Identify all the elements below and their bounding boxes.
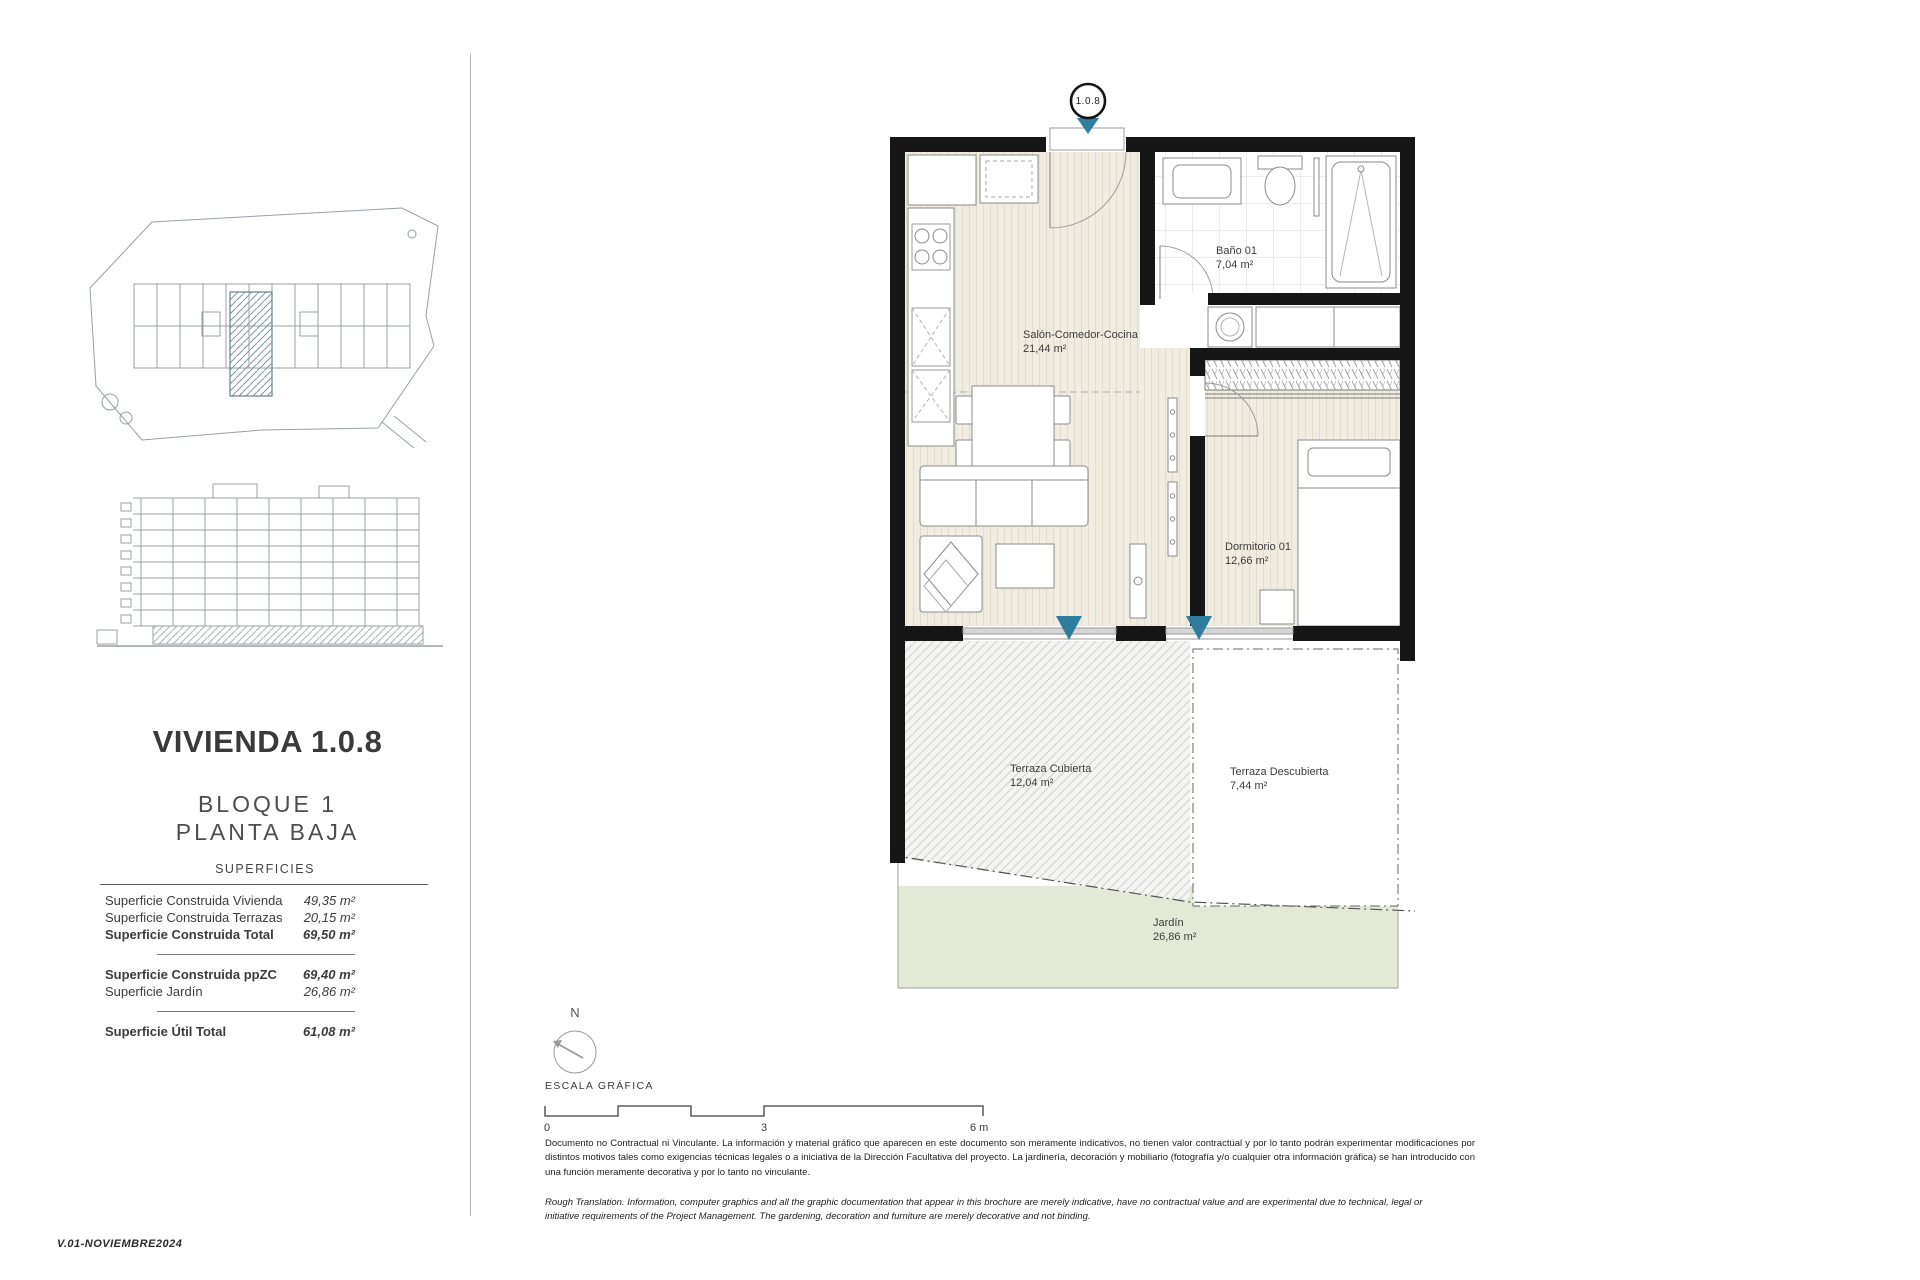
surface-value: 69,50 m² [303,926,355,943]
surface-label: Superficie Útil Total [105,1023,226,1040]
table-row: Superficie Construida Vivienda 49,35 m² [105,892,355,909]
block-label: BLOQUE 1 [198,791,337,817]
room-area: 7,04 m² [1216,258,1257,272]
graphic-scale-title: ESCALA GRÁFICA [545,1080,654,1092]
dining-furniture [956,386,1070,478]
north-arrow-icon [545,1022,605,1082]
document-version: V.01-NOVIEMBRE2024 [57,1238,182,1250]
table-row: Superficie Construida ppZC 69,40 m² [105,966,355,983]
disclaimer-english: Rough Translation. Information, computer… [545,1196,1450,1225]
surfaces-table: Superficie Construida Vivienda 49,35 m² … [105,892,355,1040]
room-area: 26,86 m² [1153,930,1196,944]
room-label-salon: Salón-Comedor-Cocina 21,44 m² [1023,328,1138,357]
room-name: Baño 01 [1216,245,1257,257]
floor-label: PLANTA BAJA [176,819,359,845]
table-row: Superficie Útil Total 61,08 m² [105,1023,355,1040]
laundry-fixtures [1208,307,1400,347]
unit-marker-label: 1.0.8 [1064,96,1112,107]
room-name: Terraza Cubierta [1010,763,1091,775]
surface-label: Superficie Jardín [105,983,203,1000]
disclaimer-spanish: Documento no Contractual ni Vinculante. … [545,1137,1475,1180]
room-name: Terraza Descubierta [1230,766,1328,778]
page-title: VIVIENDA 1.0.8 [100,724,435,760]
surface-value: 69,40 m² [303,966,355,983]
surface-value: 61,08 m² [303,1023,355,1040]
scale-tick-6: 6 m [970,1122,1004,1134]
room-label-bano: Baño 01 7,04 m² [1216,244,1257,273]
room-label-terraza-descubierta: Terraza Descubierta 7,44 m² [1230,765,1328,794]
site-plan-drawing [82,196,467,468]
floor-plan-drawing [868,68,1428,1020]
room-area: 7,44 m² [1230,779,1328,793]
north-label: N [560,1005,590,1020]
table-row: Superficie Construida Total 69,50 m² [105,926,355,943]
room-label-jardin: Jardín 26,86 m² [1153,916,1196,945]
room-area: 21,44 m² [1023,342,1138,356]
room-label-terraza-cubierta: Terraza Cubierta 12,04 m² [1010,762,1091,791]
scale-tick-3: 3 [757,1122,771,1134]
surface-label: Superficie Construida ppZC [105,966,277,983]
scale-bar [543,1098,993,1122]
room-name: Jardín [1153,917,1184,929]
room-area: 12,66 m² [1225,554,1291,568]
surfaces-header-rule [100,884,428,885]
surfaces-table-header: SUPERFICIES [100,862,430,876]
table-row: Superficie Construida Terrazas 20,15 m² [105,909,355,926]
room-name: Salón-Comedor-Cocina [1023,329,1138,341]
surface-label: Superficie Construida Total [105,926,274,943]
elevation-drawing [95,470,447,680]
table-row: Superficie Jardín 26,86 m² [105,983,355,1000]
floor-plan: 1.0.8 Salón-Comedor-Cocina 21,44 m² Baño… [868,68,1428,1020]
room-name: Dormitorio 01 [1225,541,1291,553]
table-divider [157,954,355,955]
block-floor-subtitle: BLOQUE 1 PLANTA BAJA [100,790,435,846]
scale-tick-0: 0 [540,1122,554,1134]
highlighted-unit-on-siteplan [230,292,272,396]
room-area: 12,04 m² [1010,776,1091,790]
surface-value: 26,86 m² [304,983,355,1000]
room-label-dormitorio: Dormitorio 01 12,66 m² [1225,540,1291,569]
brochure-page: VIVIENDA 1.0.8 BLOQUE 1 PLANTA BAJA SUPE… [0,0,1920,1280]
surface-label: Superficie Construida Terrazas [105,909,283,926]
table-divider [157,1011,355,1012]
surface-value: 49,35 m² [304,892,355,909]
surface-label: Superficie Construida Vivienda [105,892,283,909]
surface-value: 20,15 m² [304,909,355,926]
column-divider-rule [470,54,471,1216]
